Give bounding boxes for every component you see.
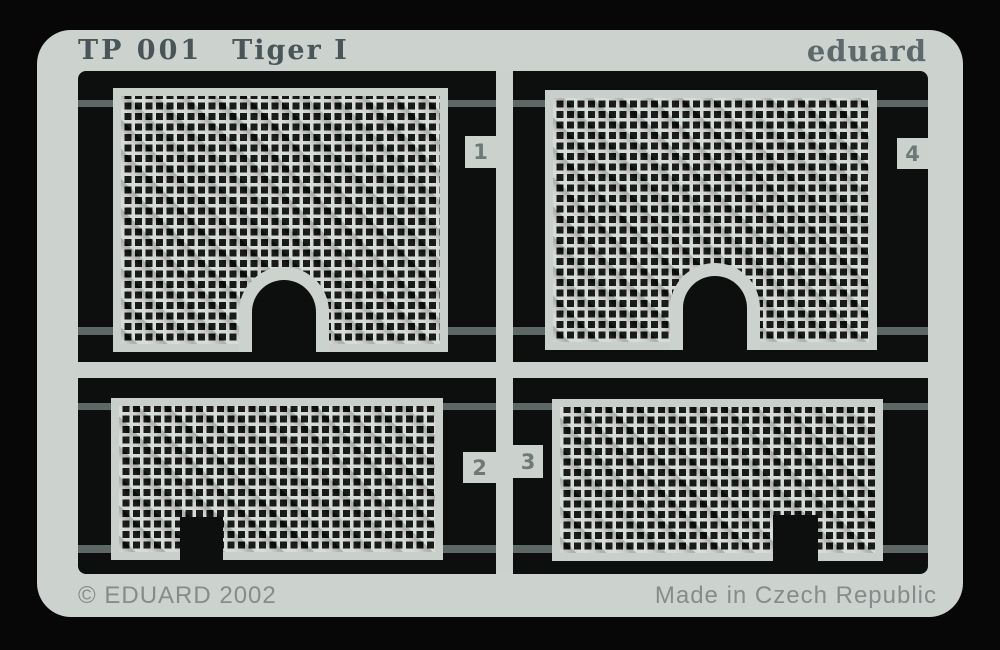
footer-band: © EDUARD 2002 Made in Czech Republic (78, 574, 937, 617)
mesh-grille-part-3 (552, 399, 883, 561)
mesh-grille-part-1 (113, 88, 448, 352)
part-number-label: 3 (521, 450, 536, 474)
photoetch-sheet-photo: TP 001 Tiger I eduard (0, 0, 1000, 650)
part-number-tag-1: 1 (465, 136, 496, 168)
woven-mesh-texture (560, 407, 875, 553)
mesh-grille-part-2 (111, 398, 443, 560)
fret-interior: 1 2 3 4 (78, 71, 928, 574)
part-number-label: 1 (473, 140, 488, 164)
square-notch-opening (180, 517, 223, 560)
arch-cutout-opening (252, 280, 316, 352)
brand-logo: eduard (807, 34, 927, 68)
part-number-tag-3: 3 (513, 445, 543, 478)
part-number-tag-2: 2 (463, 452, 496, 483)
part-number-tag-4: 4 (897, 138, 928, 169)
header-band: TP 001 Tiger I eduard (78, 30, 927, 71)
sheet-code: TP 001 (78, 35, 202, 66)
part-number-label: 4 (905, 142, 920, 166)
vertical-center-runner (496, 71, 513, 574)
square-notch-opening (773, 515, 818, 561)
fret-frame: TP 001 Tiger I eduard (37, 30, 963, 617)
woven-mesh-texture (119, 406, 435, 552)
copyright-text: © EDUARD 2002 (78, 582, 277, 610)
part-number-label: 2 (472, 456, 487, 480)
made-in-text: Made in Czech Republic (655, 582, 937, 610)
mesh-grille-part-4 (545, 90, 877, 350)
arch-cutout-opening (683, 276, 747, 350)
sheet-name: Tiger I (232, 35, 349, 66)
